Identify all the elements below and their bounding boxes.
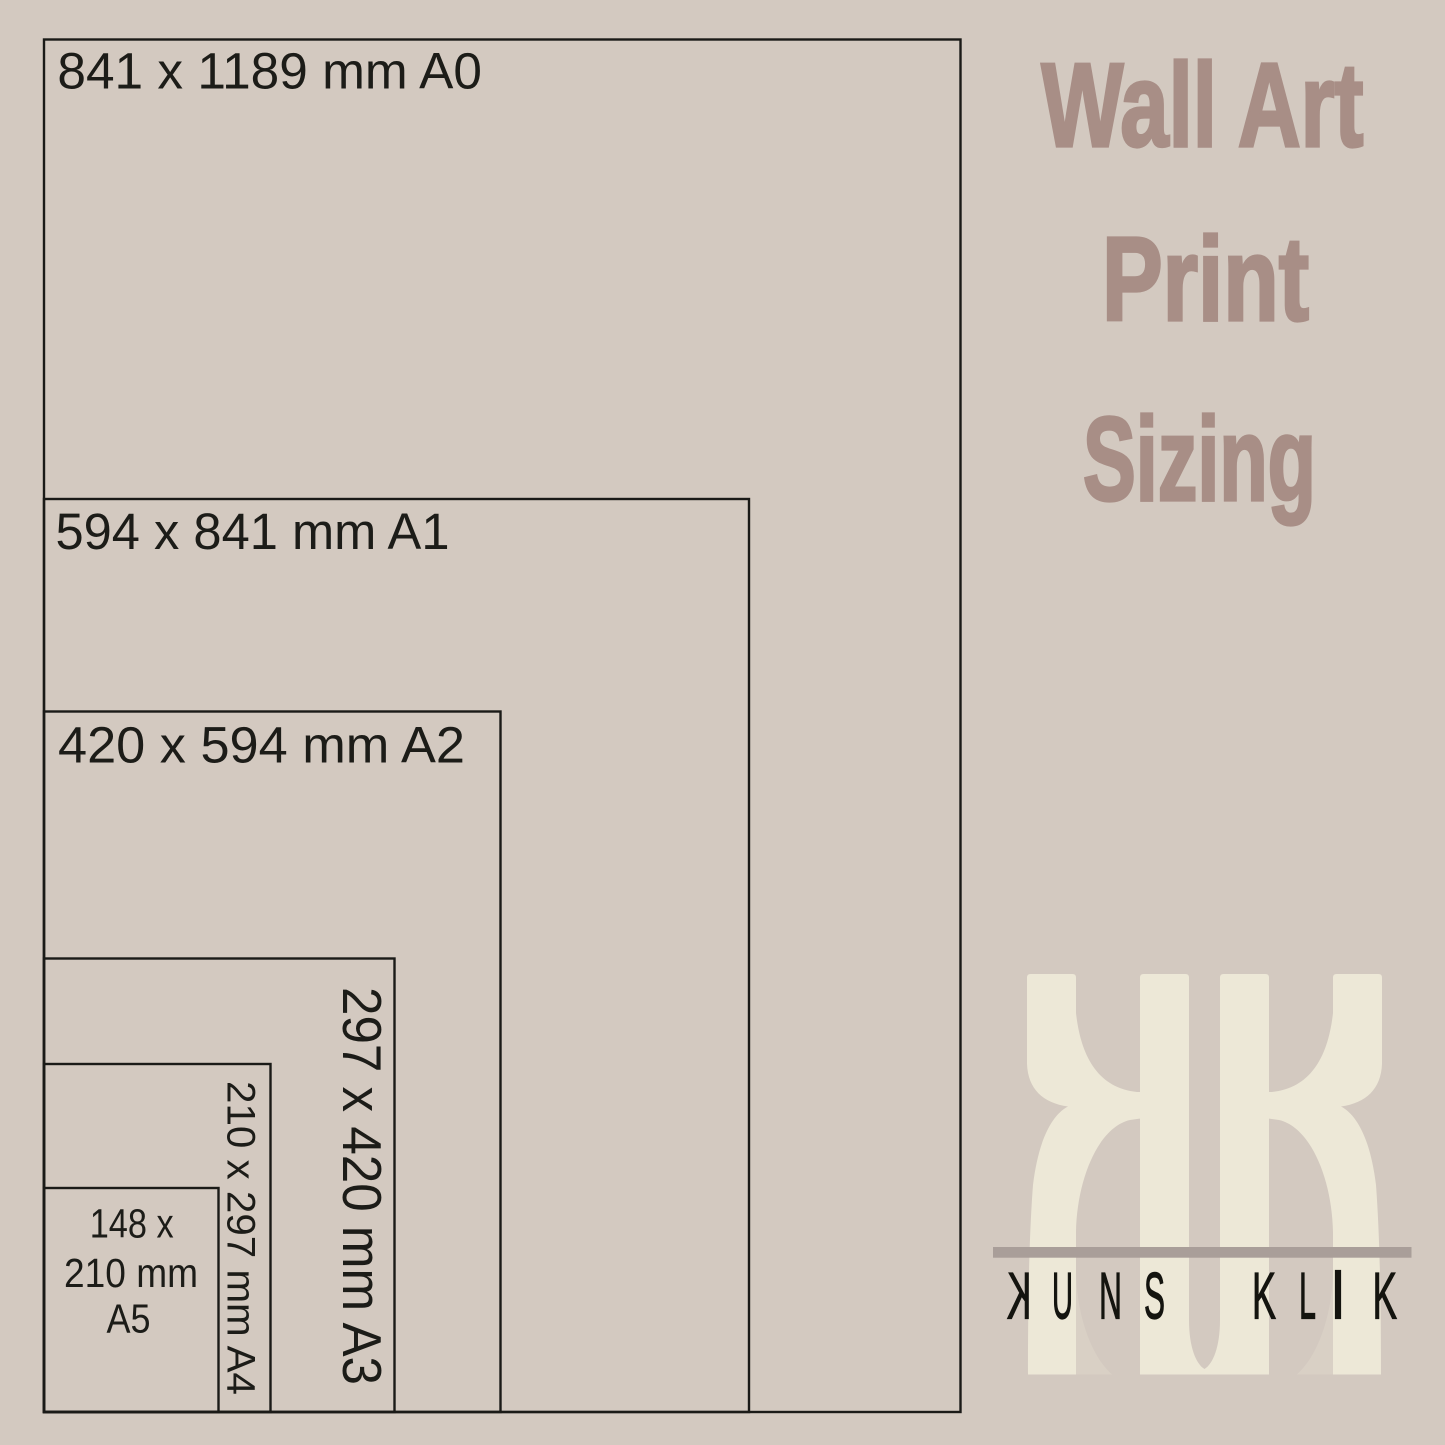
svg-text:594 x 841 mm A1: 594 x 841 mm A1 [56, 503, 450, 560]
svg-text:210 x 297 mm A4: 210 x 297 mm A4 [219, 1081, 263, 1395]
svg-text:A5: A5 [107, 1296, 151, 1342]
svg-text:K: K [1373, 1259, 1398, 1333]
svg-text:K: K [1007, 1259, 1032, 1333]
svg-text:Sizing: Sizing [1083, 393, 1316, 526]
svg-text:U: U [1052, 1259, 1073, 1333]
svg-text:K: K [1252, 1259, 1276, 1333]
svg-text:210 mm: 210 mm [64, 1250, 198, 1296]
svg-text:S: S [1144, 1259, 1165, 1333]
svg-text:297 x 420 mm A3: 297 x 420 mm A3 [331, 987, 393, 1385]
svg-text:Wall Art: Wall Art [1041, 39, 1363, 172]
svg-text:Print: Print [1102, 213, 1309, 346]
svg-text:N: N [1099, 1259, 1122, 1333]
svg-text:L: L [1299, 1259, 1316, 1333]
svg-text:148 x: 148 x [90, 1201, 174, 1247]
svg-text:420 x 594 mm A2: 420 x 594 mm A2 [58, 717, 465, 774]
svg-text:841 x 1189 mm A0: 841 x 1189 mm A0 [57, 43, 482, 100]
